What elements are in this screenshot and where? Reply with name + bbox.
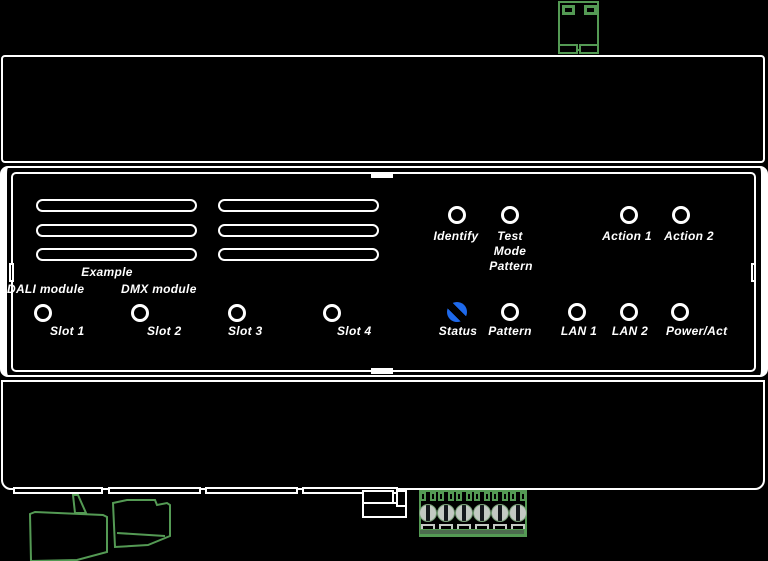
dali-module-label: DALI module bbox=[7, 283, 84, 296]
terminal-pin bbox=[430, 492, 436, 501]
terminal-screw-icon bbox=[491, 504, 509, 522]
pattern-label: Pattern bbox=[488, 325, 531, 338]
top-terminal-window-icon bbox=[584, 5, 597, 15]
terminal-screw-icon bbox=[419, 504, 437, 522]
wire-plug-detail-line bbox=[117, 533, 165, 536]
terminal-screw-icon bbox=[437, 504, 455, 522]
stepped-connector-step bbox=[362, 490, 394, 504]
slot4-led bbox=[323, 304, 341, 322]
vent-slot bbox=[36, 224, 197, 237]
terminal-pin bbox=[438, 492, 444, 501]
terminal-pin bbox=[456, 492, 462, 501]
status-led bbox=[447, 302, 467, 322]
vent-slot bbox=[218, 248, 379, 261]
terminal-pin bbox=[484, 492, 490, 501]
action2-led bbox=[672, 206, 690, 224]
terminal-pin bbox=[502, 492, 508, 501]
lan1-label: LAN 1 bbox=[561, 325, 597, 338]
power-act-label: Power/Act bbox=[666, 325, 727, 338]
terminal-pin bbox=[492, 492, 498, 501]
vent-slot bbox=[36, 199, 197, 212]
terminal-screw-icon bbox=[509, 504, 527, 522]
panel-latch-top bbox=[371, 172, 393, 178]
panel-side-notch bbox=[9, 263, 14, 282]
status-label: Status bbox=[439, 325, 477, 338]
terminal-bottom-strip bbox=[419, 529, 525, 535]
lan1-led bbox=[568, 303, 586, 321]
terminal-pin bbox=[448, 492, 454, 501]
slot2-led bbox=[131, 304, 149, 322]
lan2-led bbox=[620, 303, 638, 321]
slot1-led bbox=[34, 304, 52, 322]
vent-slot bbox=[218, 224, 379, 237]
vent-slot bbox=[218, 199, 379, 212]
pattern-led bbox=[501, 303, 519, 321]
panel-side-notch bbox=[751, 263, 756, 282]
wire-plug-left bbox=[30, 512, 107, 561]
terminal-pin bbox=[420, 492, 426, 501]
panel-latch-bottom bbox=[371, 368, 393, 374]
dmx-module-label: DMX module bbox=[121, 283, 197, 296]
terminal-pin bbox=[466, 492, 472, 501]
terminal-pin bbox=[520, 492, 526, 501]
din-rail-device-diagram: Example DALI module DMX module Slot 1 Sl… bbox=[0, 0, 768, 561]
action1-label: Action 1 bbox=[602, 230, 652, 243]
slot1-label: Slot 1 bbox=[50, 325, 84, 338]
test-mode-pattern-led bbox=[501, 206, 519, 224]
terminal-pin bbox=[474, 492, 480, 501]
vent-slot bbox=[36, 248, 197, 261]
action2-label: Action 2 bbox=[664, 230, 714, 243]
top-terminal-foot bbox=[558, 44, 578, 54]
test-label-line1: Test bbox=[497, 230, 522, 243]
wire-plug-connectors bbox=[20, 492, 180, 561]
identify-label: Identify bbox=[433, 230, 478, 243]
top-terminal-foot bbox=[579, 44, 599, 54]
slot4-label: Slot 4 bbox=[337, 325, 371, 338]
slot3-led bbox=[228, 304, 246, 322]
bottom-edge-tab bbox=[205, 487, 298, 494]
upper-housing bbox=[1, 55, 765, 163]
screw-terminal-block bbox=[419, 490, 527, 537]
terminal-screw-icon bbox=[455, 504, 473, 522]
action1-led bbox=[620, 206, 638, 224]
identify-led bbox=[448, 206, 466, 224]
wire-plug-right bbox=[113, 500, 170, 547]
slot2-label: Slot 2 bbox=[147, 325, 181, 338]
power-act-led bbox=[671, 303, 689, 321]
lan2-label: LAN 2 bbox=[612, 325, 648, 338]
top-terminal-window-icon bbox=[562, 5, 575, 15]
test-label-line2: Mode bbox=[494, 245, 527, 258]
example-label: Example bbox=[81, 266, 132, 279]
terminal-pin bbox=[510, 492, 516, 501]
stepped-connector-step bbox=[396, 490, 407, 507]
terminal-screw-icon bbox=[473, 504, 491, 522]
lower-housing bbox=[1, 380, 765, 490]
slot3-label: Slot 3 bbox=[228, 325, 262, 338]
test-label-line3: Pattern bbox=[489, 260, 532, 273]
wire-plug-neck bbox=[73, 495, 86, 513]
